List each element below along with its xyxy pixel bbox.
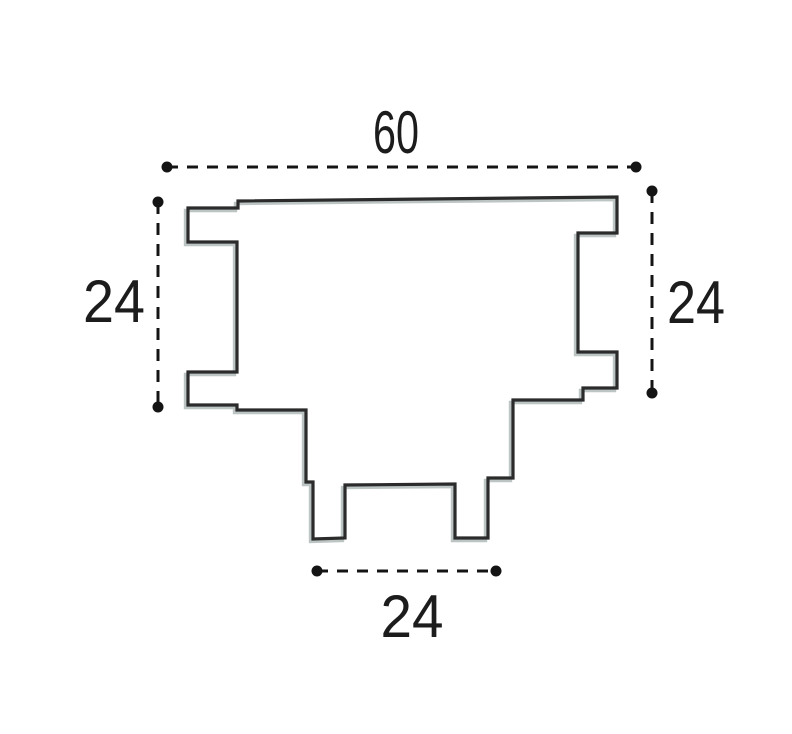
dimension-bottom-width: 24 — [312, 566, 502, 651]
dimension-endpoint-dot — [153, 402, 164, 413]
dimension-label-left: 24 — [83, 268, 145, 335]
dimension-endpoint-dot — [312, 566, 323, 577]
dimension-endpoint-dot — [631, 162, 642, 173]
dimension-label-top: 60 — [373, 99, 419, 166]
dimension-endpoint-dot — [153, 197, 164, 208]
dimension-endpoint-dot — [647, 186, 658, 197]
profile-shape — [186, 197, 618, 542]
dimension-label-bottom: 24 — [381, 583, 444, 650]
dimension-endpoint-dot — [491, 566, 502, 577]
dimension-label-right: 24 — [667, 269, 725, 336]
dimension-endpoint-dot — [162, 162, 173, 173]
technical-drawing: 60 24 24 24 — [0, 0, 792, 734]
dimension-left-height: 24 — [83, 197, 164, 413]
dimension-right-height: 24 — [647, 186, 726, 399]
dimension-top-width: 60 — [162, 99, 642, 173]
profile-outline-shadow — [186, 200, 615, 542]
dimension-endpoint-dot — [647, 388, 658, 399]
diagram-canvas: 60 24 24 24 — [0, 0, 792, 734]
